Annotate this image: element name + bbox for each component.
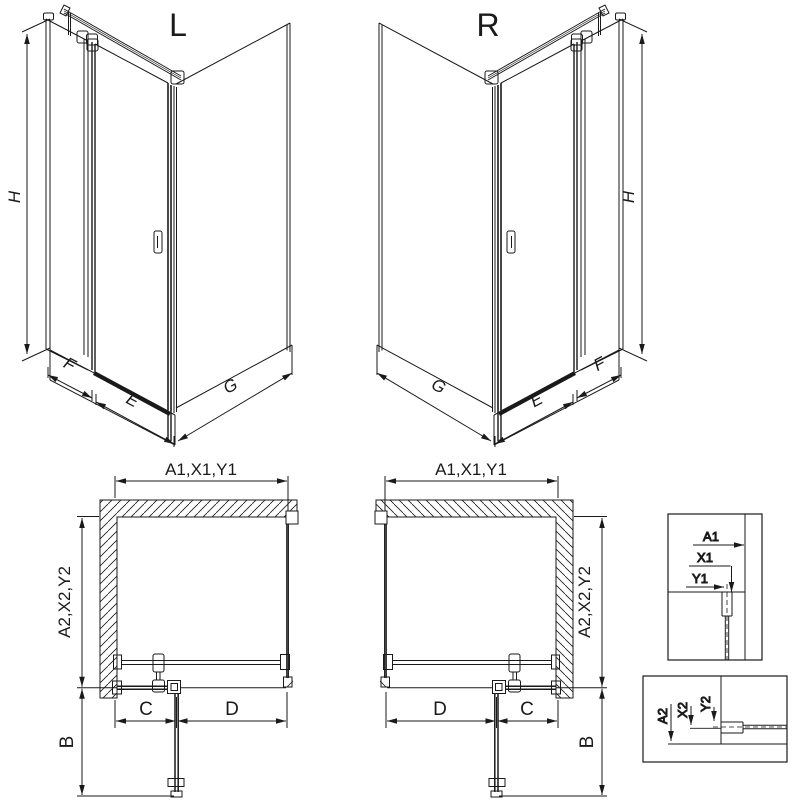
plan-left-side-dimensions (77, 517, 174, 797)
plan-right-depth-dim-label: A2,X2,Y2 (575, 566, 594, 638)
detail-box-depth: A2 X2 Y2 (643, 676, 787, 762)
plan-right-side-dimensions (499, 517, 607, 797)
detail-box-width: A1 X1 Y1 (668, 514, 762, 660)
view-label-left: L (169, 7, 187, 43)
detail-x2-label: X2 (675, 702, 690, 718)
detail-y2-label: Y2 (698, 696, 713, 712)
plan-view-right: A1,X1,Y1 A2,X2,Y2 B D C (375, 460, 607, 797)
detail-wall-profile-horizontal (713, 722, 787, 733)
plan-left-door-dim-label: D (225, 699, 239, 720)
plan-right-door-dim-label: D (433, 699, 447, 720)
detail-a1-label: A1 (703, 529, 719, 544)
plan-left-swing-dim-label: B (57, 736, 78, 749)
plan-view-left: A1,X1,Y1 A2,X2,Y2 B C D (55, 460, 298, 797)
shower-enclosure-technical-drawing: L H F E G R H F E G A1,X1,Y1 A2,X2,Y2 B … (0, 0, 800, 800)
plan-left-fixed-dim-label: C (139, 699, 153, 720)
iso-view-right: R H F E G (377, 5, 647, 447)
dim-label-height-left: H (5, 190, 24, 203)
plan-left-width-dim-label: A1,X1,Y1 (165, 460, 237, 479)
diagram-canvas: L H F E G R H F E G A1,X1,Y1 A2,X2,Y2 B … (0, 0, 800, 800)
dim-label-side-left: G (220, 375, 241, 398)
dim-label-side-right: G (428, 375, 449, 398)
detail-wall-profile (722, 584, 732, 660)
detail-y1-label: Y1 (692, 571, 708, 586)
dim-label-height-right: H (619, 190, 638, 203)
iso-view-left: L H F E G (5, 5, 292, 447)
view-label-right: R (476, 7, 499, 43)
plan-right-fixed-dim-label: C (520, 699, 534, 720)
detail-x1-label: X1 (697, 550, 713, 565)
detail-a2-label: A2 (655, 708, 670, 724)
plan-right-swing-dim-label: B (577, 736, 598, 749)
plan-left-depth-dim-label: A2,X2,Y2 (55, 566, 74, 638)
plan-right-width-dim-label: A1,X1,Y1 (435, 460, 507, 479)
